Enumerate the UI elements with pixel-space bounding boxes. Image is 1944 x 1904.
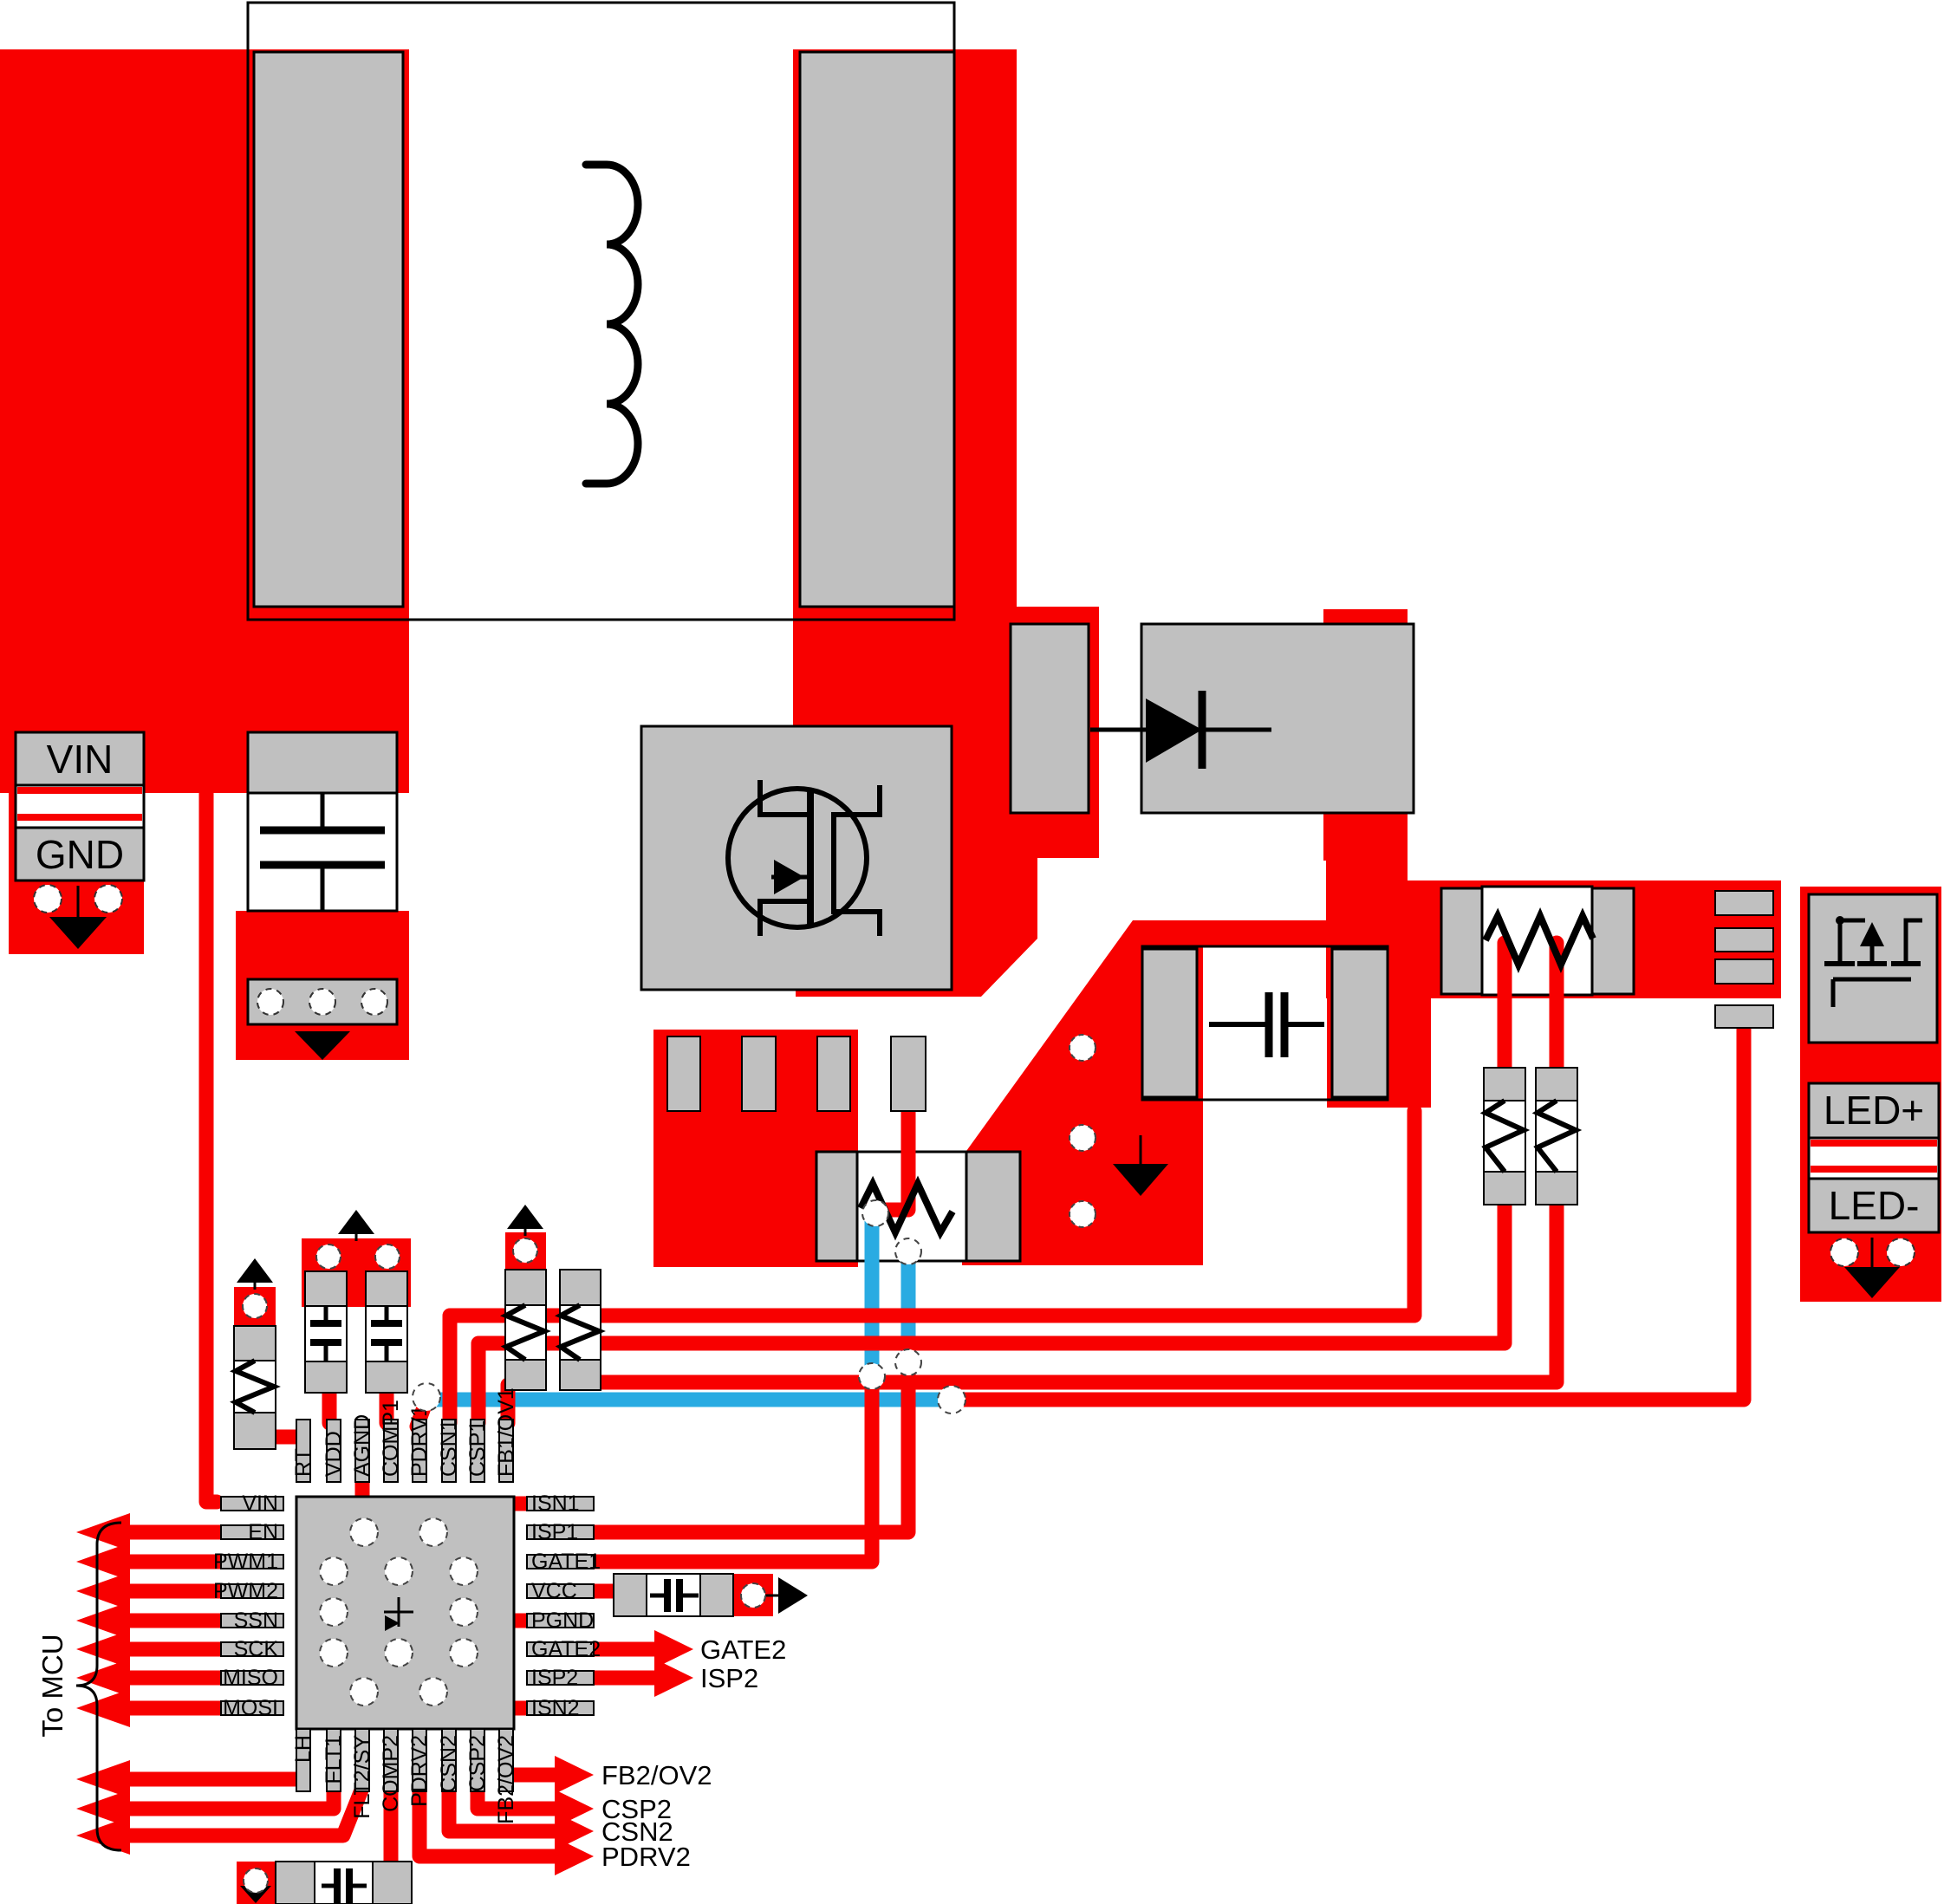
arrow-right-icon bbox=[555, 1756, 594, 1794]
pdrv1-resistors bbox=[505, 1270, 601, 1390]
gate-pad-1 bbox=[1715, 891, 1773, 915]
pin-label-csp2: CSP2 bbox=[465, 1735, 490, 1791]
feedback-resistors bbox=[1484, 1068, 1577, 1205]
pin-label-isp1: ISP1 bbox=[531, 1520, 578, 1544]
pin-label-isn2: ISN2 bbox=[531, 1696, 580, 1720]
trace-pdrv2-out bbox=[419, 1788, 555, 1856]
pin-label-vdd: VDD bbox=[322, 1431, 346, 1477]
to-mcu-label: To MCU bbox=[36, 1634, 68, 1737]
pin-label-fb2ov2: FB2/OV2 bbox=[494, 1735, 518, 1824]
pin-label-flt2sy: FLT2/SY bbox=[350, 1735, 374, 1819]
output-capacitor bbox=[1142, 946, 1388, 1100]
isp2-signal-label: ISP2 bbox=[700, 1663, 758, 1693]
pin-label-miso: MISO bbox=[223, 1666, 278, 1690]
arrow-left-icon bbox=[76, 1659, 130, 1697]
arrow-right-icon bbox=[555, 1837, 594, 1875]
via bbox=[895, 1349, 921, 1375]
via bbox=[375, 1244, 400, 1269]
controller-ic: RT VDD AGND COMP1 PDRV1 CSN1 CSP1 FB1/OV… bbox=[213, 1387, 601, 1824]
pour-diode-tab-bottom bbox=[1323, 813, 1408, 861]
pcb-layout-diagram: RT VDD AGND COMP1 PDRV1 CSN1 CSP1 FB1/OV… bbox=[0, 0, 1944, 1904]
inductor-coil-icon bbox=[586, 165, 638, 484]
pin-label-mosi: MOSI bbox=[223, 1696, 278, 1720]
via bbox=[859, 1363, 885, 1389]
hole bbox=[257, 989, 283, 1015]
via bbox=[862, 1200, 888, 1226]
pin-label-csn2: CSN2 bbox=[437, 1735, 461, 1793]
pin-label-lh: LH bbox=[291, 1735, 315, 1763]
pour-diode-tab-top bbox=[1323, 609, 1408, 624]
current-set-resistor-top bbox=[1441, 887, 1634, 995]
via bbox=[243, 1294, 267, 1318]
via bbox=[244, 1868, 268, 1893]
trace-vin bbox=[206, 793, 217, 1502]
vcc-cap bbox=[614, 1574, 808, 1616]
pin-label-csp1: CSP1 bbox=[465, 1420, 490, 1477]
pin-label-gate1: GATE1 bbox=[531, 1550, 601, 1574]
arrow-left-icon bbox=[76, 1816, 130, 1855]
gate-pad-4 bbox=[1715, 1005, 1773, 1028]
gnd-label: GND bbox=[36, 832, 124, 877]
pin-label-pdrv2: PDRV2 bbox=[407, 1735, 432, 1807]
hole bbox=[34, 885, 62, 913]
pin-label-flt1: FLT1 bbox=[322, 1735, 346, 1784]
net-up-icon bbox=[507, 1205, 543, 1229]
pin-label-pgnd: PGND bbox=[531, 1608, 594, 1633]
inductor bbox=[248, 3, 954, 620]
pin-label-en: EN bbox=[248, 1520, 278, 1544]
pin-label-pwm2: PWM2 bbox=[213, 1579, 278, 1603]
hole bbox=[309, 989, 335, 1015]
gate-pad-3 bbox=[1715, 959, 1773, 984]
net-up-icon bbox=[237, 1258, 273, 1283]
net-up-icon bbox=[338, 1210, 374, 1234]
pin-label-agnd: AGND bbox=[350, 1414, 374, 1477]
pin-label-gate2: GATE2 bbox=[531, 1637, 601, 1661]
gate-pad-2 bbox=[1715, 928, 1773, 952]
led-driver-fet bbox=[1715, 891, 1937, 1043]
pin-label-isn1: ISN1 bbox=[531, 1491, 580, 1516]
pin-label-pdrv1: PDRV1 bbox=[407, 1405, 432, 1477]
via bbox=[895, 1238, 921, 1264]
capacitor-icon bbox=[1209, 992, 1324, 1057]
hole bbox=[361, 989, 387, 1015]
pin-label-vin: VIN bbox=[242, 1491, 278, 1516]
pdrv2-signal-label: PDRV2 bbox=[601, 1842, 691, 1872]
via bbox=[741, 1583, 765, 1608]
via bbox=[316, 1244, 341, 1269]
pin-label-pwm1: PWM1 bbox=[213, 1550, 278, 1574]
hole bbox=[1887, 1238, 1915, 1266]
inductor-pad-left bbox=[254, 52, 403, 607]
via bbox=[513, 1238, 537, 1263]
rectifier-diode bbox=[1011, 624, 1414, 813]
pin-label-csn1: CSN1 bbox=[437, 1419, 461, 1477]
pin-label-rt: RT bbox=[291, 1448, 315, 1477]
ground-right-icon bbox=[778, 1577, 808, 1614]
hole bbox=[1830, 1238, 1858, 1266]
arrow-left-icon bbox=[76, 1689, 130, 1727]
comp2-cap bbox=[276, 1862, 412, 1904]
vin-label: VIN bbox=[47, 737, 114, 782]
trace-isp1 bbox=[589, 1366, 908, 1532]
pin-label-comp1: COMP1 bbox=[379, 1400, 403, 1477]
via bbox=[1070, 1035, 1096, 1061]
pin-label-comp2: COMP2 bbox=[379, 1735, 403, 1812]
input-capacitor bbox=[248, 732, 397, 1060]
led-plus-label: LED+ bbox=[1824, 1088, 1924, 1133]
hole bbox=[94, 885, 122, 913]
rt-resistor bbox=[234, 1326, 276, 1449]
led-minus-label: LED- bbox=[1829, 1183, 1920, 1228]
pin-label-sck: SCK bbox=[234, 1637, 279, 1661]
via bbox=[413, 1383, 440, 1411]
gate2-signal-label: GATE2 bbox=[700, 1634, 786, 1665]
via bbox=[938, 1386, 965, 1413]
pin-label-vcc: VCC bbox=[531, 1579, 577, 1603]
fb2ov2-signal-label: FB2/OV2 bbox=[601, 1760, 712, 1790]
via bbox=[1070, 1201, 1096, 1227]
pin-label-isp2: ISP2 bbox=[531, 1666, 578, 1690]
pin-label-fb1ov1: FB1/OV1 bbox=[494, 1387, 518, 1477]
arrow-right-icon bbox=[654, 1659, 693, 1697]
inductor-pad-right bbox=[800, 52, 954, 607]
pin-label-ssn: SSN bbox=[234, 1608, 278, 1633]
via bbox=[1070, 1125, 1096, 1151]
main-mosfet bbox=[641, 726, 952, 990]
